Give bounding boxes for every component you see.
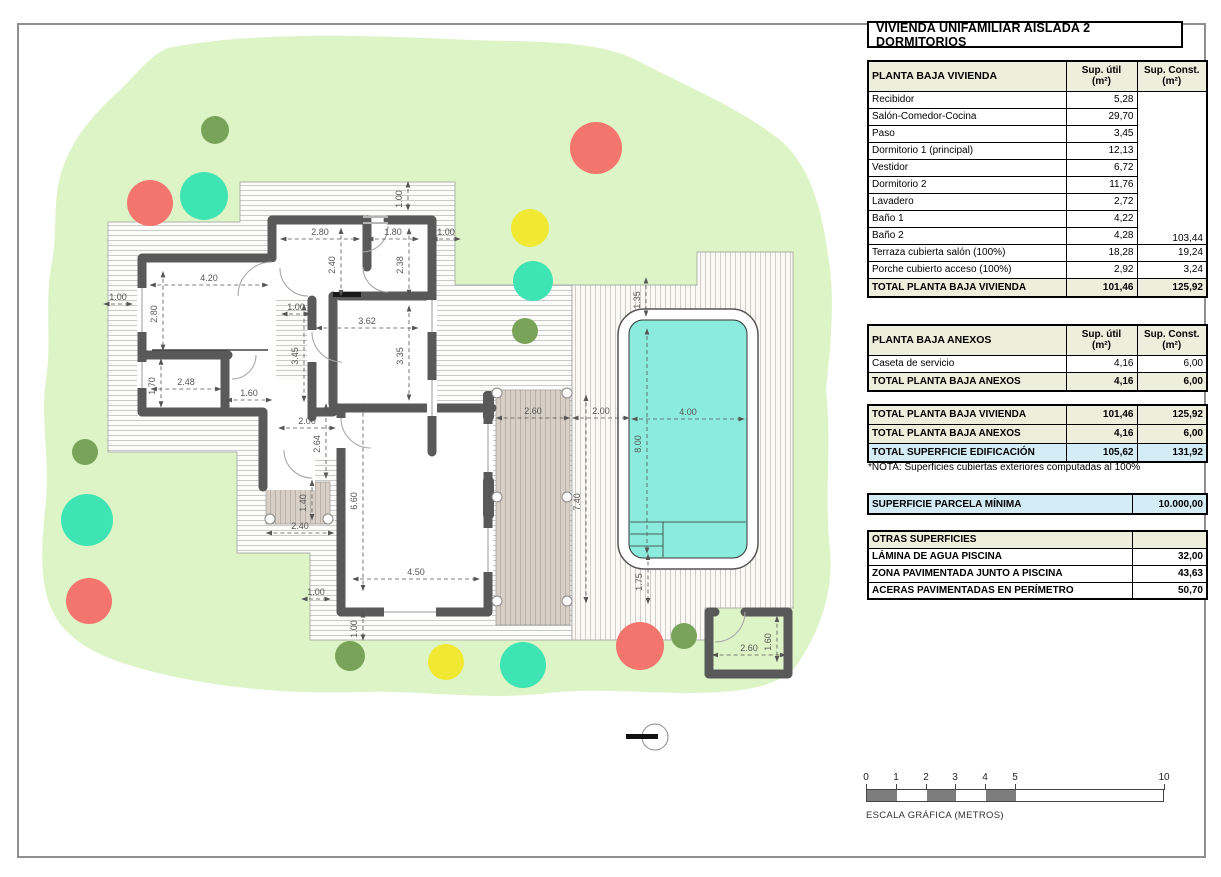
otras-value: 43,63 — [1132, 565, 1207, 582]
table-row: Terraza cubierta salón (100%)18,2819,24 — [868, 244, 1207, 261]
summary-util: 4,16 — [1066, 424, 1137, 443]
dimension-label: 1.00 — [307, 587, 325, 597]
row-label: Porche cubierto acceso (100%) — [868, 261, 1066, 278]
row-label: Dormitorio 1 (principal) — [868, 142, 1066, 159]
dimension-label: 1.35 — [632, 291, 642, 309]
dimension-label: 1.40 — [298, 494, 308, 512]
dimension-label: 1.00 — [437, 227, 455, 237]
tree-marker — [66, 578, 112, 624]
dimension-label: 1.00 — [287, 302, 305, 312]
scale-tick-label: 4 — [982, 772, 988, 783]
summary-const: 131,92 — [1137, 443, 1207, 462]
col-sup-util: Sup. útil(m²) — [1066, 325, 1137, 355]
parcela-value: 10.000,00 — [1132, 494, 1207, 514]
tree-marker — [513, 261, 553, 301]
covered-terrace — [496, 390, 570, 625]
tree-marker — [61, 494, 113, 546]
table-resumen-totales: TOTAL PLANTA BAJA VIVIENDA101,46125,92TO… — [867, 404, 1207, 463]
row-util: 4,28 — [1066, 227, 1137, 244]
col-sup-util: Sup. útil(m²) — [1066, 61, 1137, 91]
tree-marker — [428, 644, 464, 680]
scale-tick-label: 5 — [1012, 772, 1018, 783]
dimension-label: 8.00 — [633, 435, 643, 453]
table-row: Porche cubierto acceso (100%)2,923,24 — [868, 261, 1207, 278]
dimension-label: 4.20 — [200, 273, 218, 283]
row-label: Dormitorio 2 — [868, 176, 1066, 193]
table-row: Recibidor5,28103,44 — [868, 91, 1207, 108]
total-const: 6,00 — [1137, 372, 1207, 391]
tree-marker — [180, 172, 228, 220]
dimension-label: 2.60 — [524, 406, 542, 416]
table-title: PLANTA BAJA ANEXOS — [868, 325, 1066, 355]
table-title: PLANTA BAJA VIVIENDA — [868, 61, 1066, 91]
row-util: 29,70 — [1066, 108, 1137, 125]
parcela-row: SUPERFICIE PARCELA MÍNIMA10.000,00 — [868, 494, 1207, 514]
dimension-label: 4.00 — [679, 407, 697, 417]
row-util: 5,28 — [1066, 91, 1137, 108]
scale-tick-label: 3 — [952, 772, 958, 783]
scale-tick-label: 1 — [893, 772, 899, 783]
scale-tick-label: 10 — [1158, 772, 1169, 783]
otras-value: 32,00 — [1132, 548, 1207, 565]
row-util: 12,13 — [1066, 142, 1137, 159]
scale-segment — [927, 790, 956, 801]
table-row: Caseta de servicio4,166,00 — [868, 355, 1207, 372]
dimension-label: 7.40 — [572, 493, 582, 511]
dimension-label: 2.00 — [592, 406, 610, 416]
summary-row: TOTAL PLANTA BAJA ANEXOS4,166,00 — [868, 424, 1207, 443]
tree-marker — [500, 642, 546, 688]
row-util: 4,16 — [1066, 355, 1137, 372]
summary-const: 6,00 — [1137, 424, 1207, 443]
dimension-label: 3.45 — [290, 347, 300, 365]
dimension-label: 2.00 — [298, 416, 316, 426]
sheet-title-text: VIVIENDA UNIFAMILIAR AISLADA 2 DORMITORI… — [876, 21, 1181, 49]
summary-label: TOTAL SUPERFICIE EDIFICACIÓN — [868, 443, 1066, 462]
row-util: 2,72 — [1066, 193, 1137, 210]
graphic-scale: 01234510 ESCALA GRÁFICA (METROS) — [866, 772, 1166, 824]
otras-header-row: OTRAS SUPERFICIES — [868, 531, 1207, 548]
scale-caption: ESCALA GRÁFICA (METROS) — [866, 810, 1004, 821]
otras-label: ZONA PAVIMENTADA JUNTO A PISCINA — [868, 565, 1132, 582]
dimension-label: 2.80 — [149, 305, 159, 323]
dimension-label: 1.00 — [394, 190, 404, 208]
table-header-row: PLANTA BAJA VIVIENDASup. útil(m²)Sup. Co… — [868, 61, 1207, 91]
total-label: TOTAL PLANTA BAJA ANEXOS — [868, 372, 1066, 391]
tree-marker — [616, 622, 664, 670]
tree-marker — [512, 318, 538, 344]
scale-tick-label: 0 — [863, 772, 869, 783]
row-label: Vestidor — [868, 159, 1066, 176]
dimension-label: 2.60 — [740, 643, 758, 653]
summary-label: TOTAL PLANTA BAJA ANEXOS — [868, 424, 1066, 443]
dimension-label: 2.48 — [177, 377, 195, 387]
summary-label: TOTAL PLANTA BAJA VIVIENDA — [868, 405, 1066, 424]
row-label: Recibidor — [868, 91, 1066, 108]
row-const: 19,24 — [1137, 244, 1207, 261]
table-total-row: TOTAL PLANTA BAJA ANEXOS4,166,00 — [868, 372, 1207, 391]
scale-segment — [867, 790, 897, 801]
summary-row: TOTAL SUPERFICIE EDIFICACIÓN105,62131,92 — [868, 443, 1207, 462]
row-util: 2,92 — [1066, 261, 1137, 278]
merged-const: 103,44 — [1137, 91, 1207, 244]
total-util: 101,46 — [1066, 278, 1137, 297]
door-leaves — [333, 292, 361, 297]
dimension-label: 1.70 — [147, 377, 157, 395]
scale-segment — [986, 790, 1016, 801]
dimension-label: 1.80 — [384, 227, 402, 237]
total-const: 125,92 — [1137, 278, 1207, 297]
dimension-label: 2.38 — [395, 256, 405, 274]
otras-row: ACERAS PAVIMENTADAS EN PERÍMETRO50,70 — [868, 582, 1207, 599]
col-sup-const: Sup. Const.(m²) — [1137, 325, 1207, 355]
row-util: 3,45 — [1066, 125, 1137, 142]
summary-util: 105,62 — [1066, 443, 1137, 462]
dimension-label: 2.40 — [291, 521, 309, 531]
scale-bar — [866, 789, 1164, 802]
row-util: 18,28 — [1066, 244, 1137, 261]
row-label: Terraza cubierta salón (100%) — [868, 244, 1066, 261]
dimension-label: 1.00 — [109, 292, 127, 302]
tree-marker — [671, 623, 697, 649]
row-util: 4,22 — [1066, 210, 1137, 227]
scale-tick-label: 2 — [923, 772, 929, 783]
plan-sheet: 1.002.801.801.002.402.384.201.002.801.00… — [0, 0, 1221, 877]
dimension-label: 2.80 — [311, 227, 329, 237]
summary-util: 101,46 — [1066, 405, 1137, 424]
otras-value: 50,70 — [1132, 582, 1207, 599]
table-parcela-minima: SUPERFICIE PARCELA MÍNIMA10.000,00 — [867, 493, 1207, 515]
tree-marker — [511, 209, 549, 247]
dimension-label: 3.62 — [358, 316, 376, 326]
tree-marker — [201, 116, 229, 144]
row-const: 6,00 — [1137, 355, 1207, 372]
row-util: 11,76 — [1066, 176, 1137, 193]
row-label: Salón-Comedor-Cocina — [868, 108, 1066, 125]
dimension-label: 4.50 — [407, 567, 425, 577]
tree-marker — [72, 439, 98, 465]
sheet-title: VIVIENDA UNIFAMILIAR AISLADA 2 DORMITORI… — [867, 21, 1183, 48]
otras-empty — [1132, 531, 1207, 548]
otras-title: OTRAS SUPERFICIES — [868, 531, 1132, 548]
table-planta-baja-vivienda: PLANTA BAJA VIVIENDASup. útil(m²)Sup. Co… — [867, 60, 1207, 298]
otras-row: LÁMINA DE AGUA PISCINA32,00 — [868, 548, 1207, 565]
row-label: Baño 1 — [868, 210, 1066, 227]
nota-text: *NOTA: Superficies cubiertas exteriores … — [868, 462, 1140, 473]
tree-marker — [570, 122, 622, 174]
table-otras-superficies: OTRAS SUPERFICIESLÁMINA DE AGUA PISCINA3… — [867, 530, 1207, 600]
otras-label: ACERAS PAVIMENTADAS EN PERÍMETRO — [868, 582, 1132, 599]
otras-row: ZONA PAVIMENTADA JUNTO A PISCINA43,63 — [868, 565, 1207, 582]
total-label: TOTAL PLANTA BAJA VIVIENDA — [868, 278, 1066, 297]
dimension-label: 1.60 — [240, 388, 258, 398]
row-util: 6,72 — [1066, 159, 1137, 176]
row-label: Lavadero — [868, 193, 1066, 210]
col-sup-const: Sup. Const.(m²) — [1137, 61, 1207, 91]
row-label: Caseta de servicio — [868, 355, 1066, 372]
otras-label: LÁMINA DE AGUA PISCINA — [868, 548, 1132, 565]
row-const: 3,24 — [1137, 261, 1207, 278]
dimension-label: 2.64 — [312, 435, 322, 453]
summary-row: TOTAL PLANTA BAJA VIVIENDA101,46125,92 — [868, 405, 1207, 424]
tree-marker — [127, 180, 173, 226]
parcela-label: SUPERFICIE PARCELA MÍNIMA — [868, 494, 1132, 514]
dimension-label: 6.60 — [349, 492, 359, 510]
tree-marker — [335, 641, 365, 671]
dimension-label: 1.60 — [763, 633, 773, 651]
north-indicator — [626, 724, 668, 750]
row-label: Paso — [868, 125, 1066, 142]
row-label: Baño 2 — [868, 227, 1066, 244]
dimension-label: 3.35 — [395, 347, 405, 365]
table-header-row: PLANTA BAJA ANEXOSSup. útil(m²)Sup. Cons… — [868, 325, 1207, 355]
dimension-label: 1.75 — [634, 573, 644, 591]
summary-const: 125,92 — [1137, 405, 1207, 424]
total-util: 4,16 — [1066, 372, 1137, 391]
scale-tick — [1164, 784, 1165, 790]
table-planta-baja-anexos: PLANTA BAJA ANEXOSSup. útil(m²)Sup. Cons… — [867, 324, 1207, 392]
table-total-row: TOTAL PLANTA BAJA VIVIENDA101,46125,92 — [868, 278, 1207, 297]
dimension-label: 2.40 — [327, 256, 337, 274]
dimension-label: 1.00 — [349, 620, 359, 638]
